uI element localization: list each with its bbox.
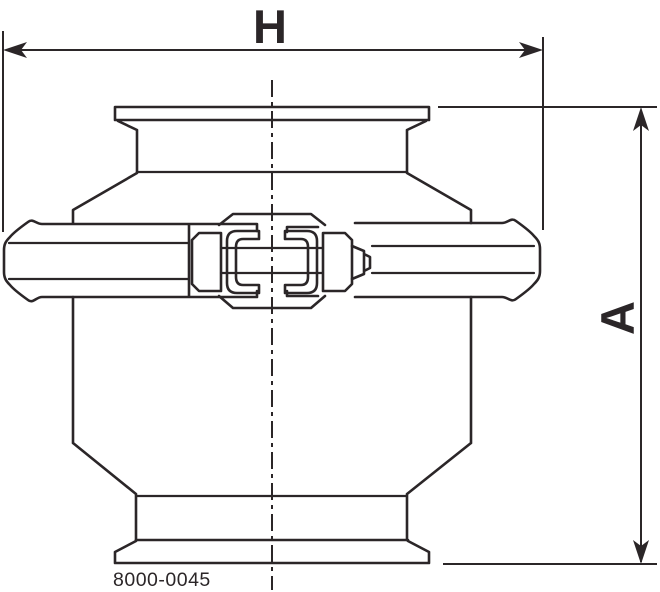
clamp-bracket-right	[285, 231, 317, 293]
clamp-bolt-tip	[352, 246, 370, 279]
dimension-a-label: A	[591, 301, 644, 335]
technical-drawing-svg: H A	[0, 0, 660, 592]
clamp-lug-right	[323, 233, 352, 291]
clamp-arm-right-band-lines	[372, 246, 534, 273]
clamp-lug-left	[192, 233, 221, 291]
clamp-arm-right	[355, 220, 540, 301]
dimension-h-label: H	[253, 0, 287, 53]
part-number: 8000-0045	[113, 569, 211, 591]
clamp-arm-left-band-lines	[9, 243, 189, 279]
technical-drawing: H A	[0, 0, 660, 592]
clamp-bracket-left	[227, 231, 259, 293]
